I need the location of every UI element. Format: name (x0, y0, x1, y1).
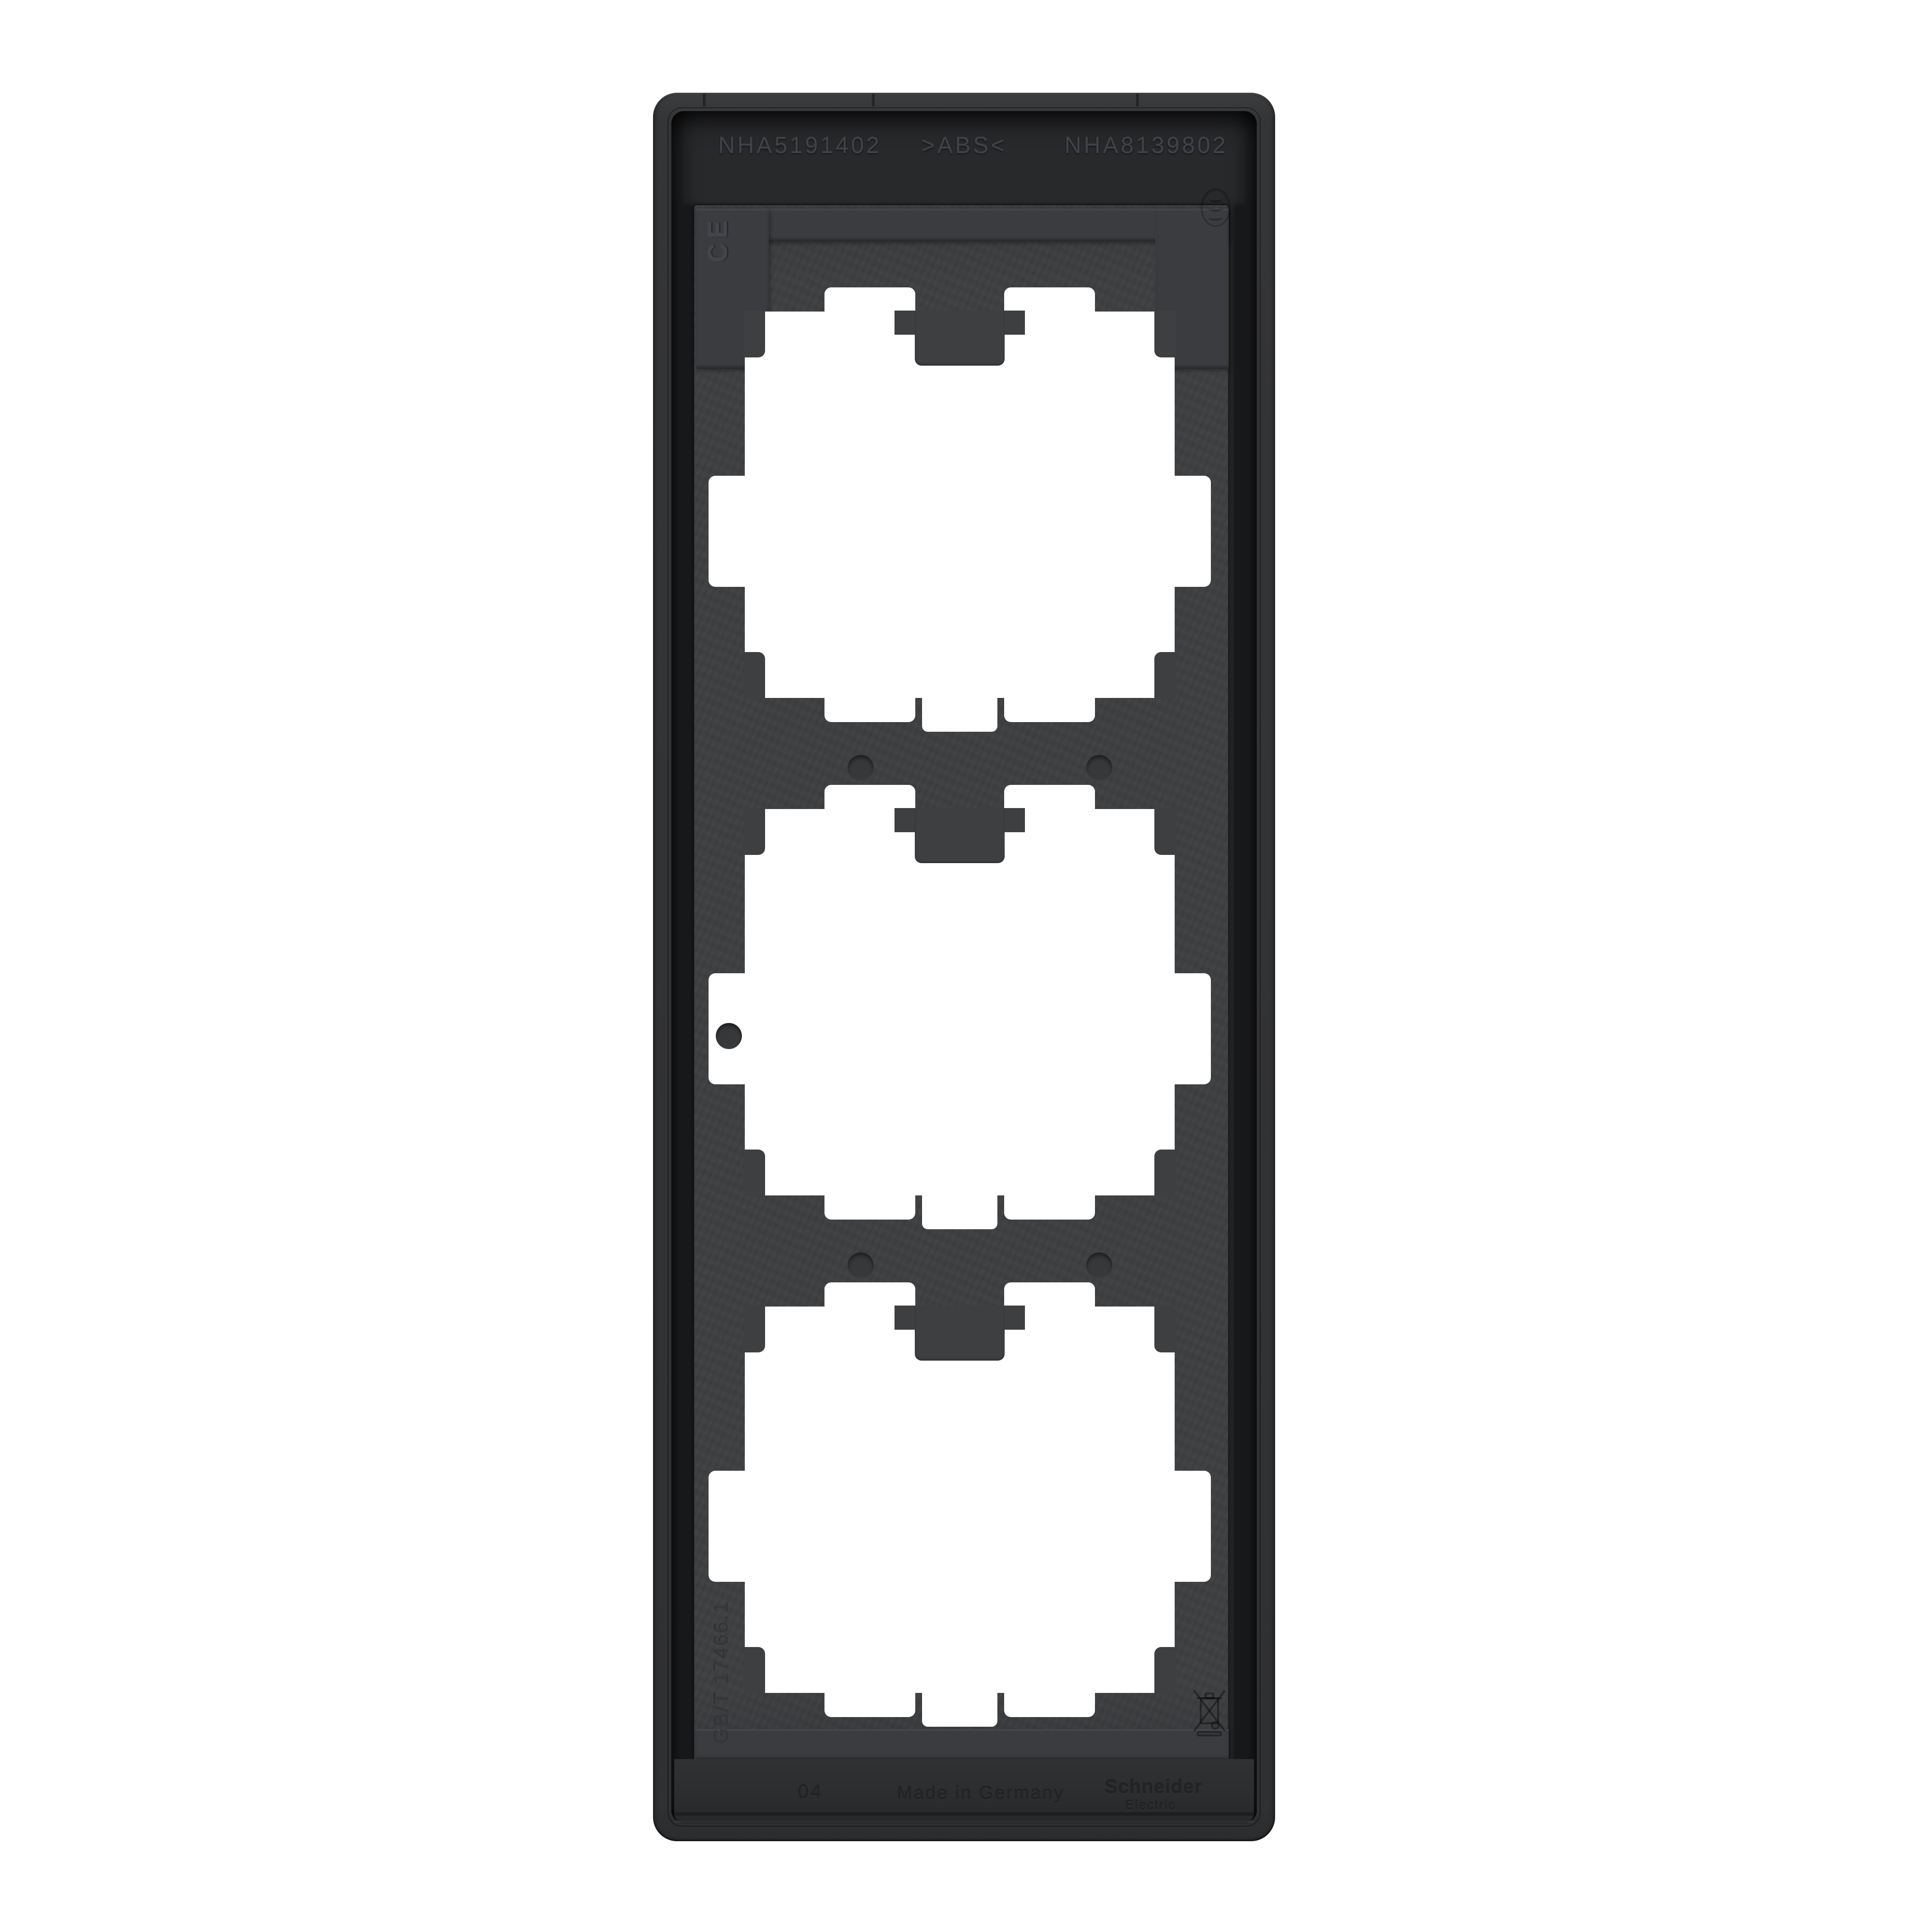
window-tab-bottom (1004, 660, 1095, 722)
emboss-mold-stamp: 04 (798, 1781, 824, 1803)
corner-step (744, 652, 765, 699)
mold-dimple (848, 1252, 874, 1279)
window-notch-left (709, 476, 767, 587)
window-notch-right (1153, 973, 1211, 1084)
window-tab-bottom (824, 660, 915, 722)
window-slot-bottom (922, 1171, 997, 1229)
wave-line (1208, 213, 1223, 221)
window-main (745, 1307, 1175, 1693)
corner-step (744, 1150, 765, 1196)
mold-dimple (716, 1023, 742, 1049)
window-main (745, 312, 1175, 698)
side-groove-right (1235, 205, 1245, 1765)
rim-notch (703, 94, 706, 106)
center-tab (915, 1306, 1005, 1361)
corner-step (1154, 1306, 1176, 1352)
corner-step (1154, 652, 1176, 699)
rim-notch (872, 94, 875, 106)
cover-frame-outer-rim: NHA5191402 >ABS< NHA8139802 CE GB/T 1746… (653, 93, 1275, 1841)
window-main (745, 809, 1175, 1195)
window-notch-right (1153, 476, 1211, 587)
retainer-ledge-top (696, 209, 1229, 241)
window-opening-1 (745, 312, 1175, 698)
mold-dimple (1086, 1252, 1112, 1279)
window-slot-bottom (922, 674, 997, 732)
window-notch-left (709, 1471, 767, 1582)
wave-line (1208, 195, 1223, 202)
corner-step (1154, 1150, 1176, 1196)
corner-step (1154, 808, 1176, 855)
window-notch-right (1153, 1471, 1211, 1582)
retainer-ledge-bottom (696, 1729, 1229, 1760)
mold-dimple (1086, 755, 1112, 781)
window-opening-3 (745, 1307, 1175, 1693)
emboss-standard: GB/T 17466.1 (709, 1595, 731, 1749)
window-opening-2 (745, 809, 1175, 1195)
emboss-origin: Made in Germany (897, 1783, 1065, 1804)
corner-step (744, 1647, 765, 1694)
emboss-code-left: NHA5191402 (718, 131, 881, 160)
corner-step (1154, 311, 1176, 357)
center-tab (915, 311, 1005, 366)
corner-step (744, 1306, 765, 1352)
window-tab-bottom (824, 1655, 915, 1717)
mold-dimple (848, 755, 874, 781)
center-tab (915, 808, 1005, 863)
window-tab-bottom (824, 1158, 915, 1220)
corner-step (744, 808, 765, 855)
ce-mark-icon: CE (696, 204, 739, 274)
wave-line (1208, 204, 1223, 212)
rim-notch (1136, 94, 1139, 106)
rail-highlight (674, 1821, 1254, 1822)
emboss-brand-sub: Electric (1105, 1798, 1196, 1813)
rail-groove (674, 1812, 1254, 1816)
side-groove-left (683, 205, 694, 1765)
wavy-lines-icon (1201, 188, 1231, 227)
corner-step (1154, 1647, 1176, 1694)
emboss-code-right: NHA8139802 (1065, 131, 1228, 160)
window-tab-bottom (1004, 1158, 1095, 1220)
emboss-material: >ABS< (921, 131, 1007, 160)
emboss-brand-name: Schneider (1105, 1776, 1202, 1798)
window-tab-bottom (1004, 1655, 1095, 1717)
corner-step (744, 311, 765, 357)
weee-bin-icon (1191, 1687, 1228, 1737)
product-photo: NHA5191402 >ABS< NHA8139802 CE GB/T 1746… (653, 93, 1275, 1841)
window-slot-bottom (922, 1669, 997, 1727)
